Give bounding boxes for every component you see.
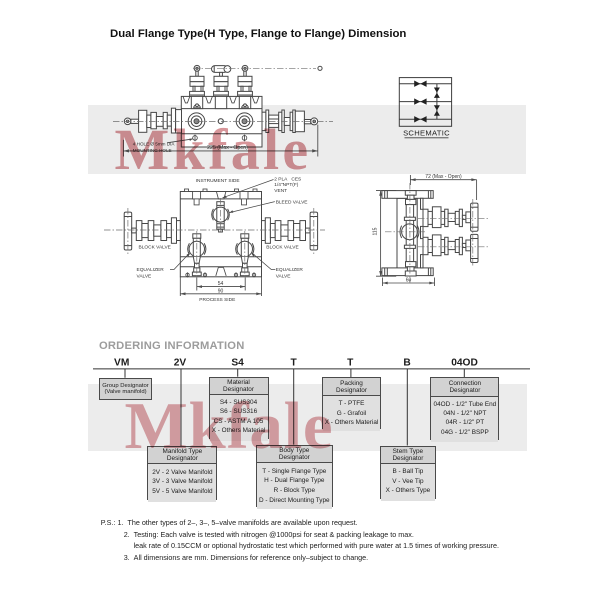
svg-text:BLEED VALVE: BLEED VALVE <box>276 200 308 206</box>
svg-text:04OD: 04OD <box>451 358 478 369</box>
svg-text:VALVE: VALVE <box>276 274 291 280</box>
svg-text:90: 90 <box>218 288 224 294</box>
svg-text:PROCESS SIDE: PROCESS SIDE <box>199 297 235 303</box>
svg-text:BLOCK VALVE: BLOCK VALVE <box>139 244 171 250</box>
svg-text:EQUALIZER: EQUALIZER <box>137 267 165 273</box>
svg-text:115: 115 <box>373 227 379 235</box>
svg-text:SCHEMATIC: SCHEMATIC <box>403 129 450 138</box>
svg-text:1/4"NPT(F): 1/4"NPT(F) <box>274 182 298 188</box>
svg-text:S4: S4 <box>231 358 244 369</box>
svg-text:EQUALIZER: EQUALIZER <box>276 267 304 273</box>
svg-text:60: 60 <box>406 277 412 283</box>
svg-text:VALVE: VALVE <box>137 274 152 280</box>
svg-text:BLOCK VALVE: BLOCK VALVE <box>266 244 298 250</box>
svg-text:T: T <box>347 358 354 369</box>
svg-text:72 (Max - Open): 72 (Max - Open) <box>425 174 462 180</box>
svg-text:2V: 2V <box>174 358 187 369</box>
svg-text:VM: VM <box>114 358 129 369</box>
svg-text:VENT: VENT <box>274 188 287 194</box>
svg-text:T: T <box>290 358 297 369</box>
svg-text:54: 54 <box>218 281 224 287</box>
svg-text:B: B <box>403 358 410 369</box>
